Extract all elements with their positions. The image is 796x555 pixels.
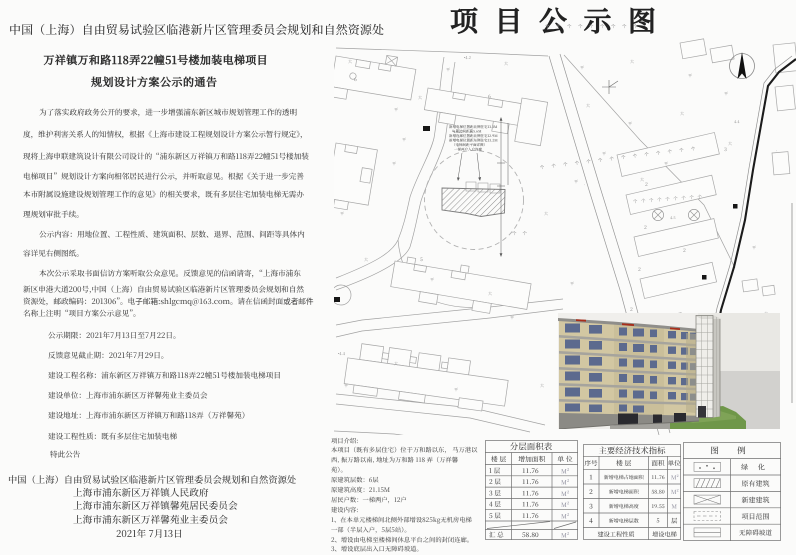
svg-text:楼 层: 楼 层 xyxy=(616,458,632,468)
svg-text:58.80: 58.80 xyxy=(651,489,664,496)
svg-text:平: 平 xyxy=(664,161,668,167)
svg-text:19.55: 19.55 xyxy=(651,503,664,510)
svg-text:5 层: 5 层 xyxy=(489,511,501,520)
svg-text:M²: M² xyxy=(671,488,679,496)
svg-text:大: 大 xyxy=(728,141,732,147)
svg-text:平: 平 xyxy=(344,383,348,389)
svg-text:一梯两户入户连廊: 一梯两户入户连廊 xyxy=(454,148,482,153)
svg-text:平: 平 xyxy=(392,161,396,167)
svg-text:增加面积: 增加面积 xyxy=(518,453,545,463)
svg-text:2: 2 xyxy=(683,247,686,254)
svg-text:M²: M² xyxy=(561,531,570,540)
svg-text:新增电梯高度: 新增电梯高度 xyxy=(609,503,639,510)
svg-text:单位: 单位 xyxy=(668,458,681,468)
svg-text:单 位: 单 位 xyxy=(557,453,573,463)
svg-text:6: 6 xyxy=(354,76,357,83)
svg-text:原有建筑: 原有建筑 xyxy=(742,479,770,489)
svg-text:M: M xyxy=(672,502,678,510)
svg-text:平: 平 xyxy=(602,151,606,157)
svg-text:图 例: 图 例 xyxy=(710,445,753,457)
svg-text:M²: M² xyxy=(561,489,570,498)
svg-text:主要经济技术指标: 主要经济技术指标 xyxy=(599,445,667,457)
svg-text:6: 6 xyxy=(488,93,491,100)
svg-text:1 层: 1 层 xyxy=(489,466,501,475)
svg-text:11.76: 11.76 xyxy=(651,474,664,481)
svg-text:平: 平 xyxy=(570,281,574,287)
svg-text:层: 层 xyxy=(671,516,678,525)
svg-text:平: 平 xyxy=(580,65,584,71)
svg-text:建设工程性质: 建设工程性质 xyxy=(597,530,634,539)
svg-text:•4.4: •4.4 xyxy=(338,352,346,357)
svg-text:11.76: 11.76 xyxy=(522,511,539,520)
svg-text:2: 2 xyxy=(644,224,647,231)
svg-text:11.76: 11.76 xyxy=(522,466,539,475)
svg-text:个个: 个个 xyxy=(512,231,533,237)
svg-text:面积: 面积 xyxy=(651,458,665,468)
svg-text:大: 大 xyxy=(680,111,684,117)
svg-text:•4.2: •4.2 xyxy=(464,56,471,61)
svg-text:.: . xyxy=(584,181,585,187)
svg-text:2: 2 xyxy=(645,181,648,188)
svg-text:.: . xyxy=(776,147,777,153)
svg-text:新增电梯层数: 新增电梯层数 xyxy=(609,518,639,525)
svg-text:平: 平 xyxy=(454,387,458,393)
svg-text:4.4: 4.4 xyxy=(734,120,740,125)
svg-text:3: 3 xyxy=(724,146,727,153)
svg-text:汇 总: 汇 总 xyxy=(489,530,504,539)
svg-text:增设电梯: 增设电梯 xyxy=(652,530,677,539)
svg-text:大: 大 xyxy=(364,257,368,263)
svg-text:平: 平 xyxy=(628,121,632,127)
svg-text:平: 平 xyxy=(688,73,692,79)
svg-text:平: 平 xyxy=(574,179,578,185)
svg-text:2: 2 xyxy=(589,486,593,496)
svg-text:大: 大 xyxy=(394,361,398,367)
svg-text:M²: M² xyxy=(671,473,679,481)
svg-text:平: 平 xyxy=(510,315,514,321)
svg-text:M²: M² xyxy=(561,478,570,487)
svg-text:3 层: 3 层 xyxy=(489,488,501,497)
svg-text:平: 平 xyxy=(340,211,344,217)
svg-text:平: 平 xyxy=(752,245,756,251)
svg-text:1: 1 xyxy=(589,471,593,481)
svg-text:大: 大 xyxy=(544,211,548,217)
svg-text:平: 平 xyxy=(446,67,450,73)
svg-text:分层面积表: 分层面积表 xyxy=(510,441,553,453)
svg-text:大: 大 xyxy=(348,59,352,65)
svg-text:平: 平 xyxy=(724,91,728,97)
svg-text:M²: M² xyxy=(561,500,570,509)
svg-text:2: 2 xyxy=(638,266,641,273)
svg-text:新增电梯占地面积: 新增电梯占地面积 xyxy=(604,474,644,481)
svg-text:11.76: 11.76 xyxy=(522,488,539,497)
svg-text:2: 2 xyxy=(630,306,633,313)
svg-text:4 层: 4 层 xyxy=(489,500,501,509)
svg-text:项目范围: 项目范围 xyxy=(742,512,770,522)
svg-text:2 层: 2 层 xyxy=(489,477,501,486)
svg-text:新建建筑: 新建建筑 xyxy=(742,495,770,505)
svg-text:大: 大 xyxy=(586,103,590,109)
svg-text:M²: M² xyxy=(561,512,570,521)
svg-text:11.76: 11.76 xyxy=(522,500,539,509)
svg-text:4.5: 4.5 xyxy=(670,216,676,221)
svg-text:序号: 序号 xyxy=(584,458,598,468)
svg-text:绿 化: 绿 化 xyxy=(741,463,769,473)
svg-text:M²: M² xyxy=(561,466,570,475)
svg-text:大: 大 xyxy=(504,61,508,67)
svg-text:无障碍坡道: 无障碍坡道 xyxy=(739,527,772,537)
svg-text:11.76: 11.76 xyxy=(522,477,539,486)
svg-text:大: 大 xyxy=(630,59,634,65)
svg-text:平: 平 xyxy=(402,137,406,143)
svg-text:58.80: 58.80 xyxy=(522,530,539,539)
svg-text:平: 平 xyxy=(430,277,434,283)
svg-text:3: 3 xyxy=(589,500,593,510)
svg-text:大: 大 xyxy=(488,291,492,297)
svg-text:大: 大 xyxy=(418,95,422,101)
svg-text:平: 平 xyxy=(394,107,398,113)
svg-text:5: 5 xyxy=(420,256,423,263)
svg-text:4: 4 xyxy=(589,515,593,525)
svg-text:新增电梯面积: 新增电梯面积 xyxy=(609,489,639,496)
svg-text:楼 层: 楼 层 xyxy=(491,453,507,463)
svg-text:5: 5 xyxy=(656,517,659,525)
svg-text:大: 大 xyxy=(640,177,644,183)
svg-text:大: 大 xyxy=(540,383,544,389)
